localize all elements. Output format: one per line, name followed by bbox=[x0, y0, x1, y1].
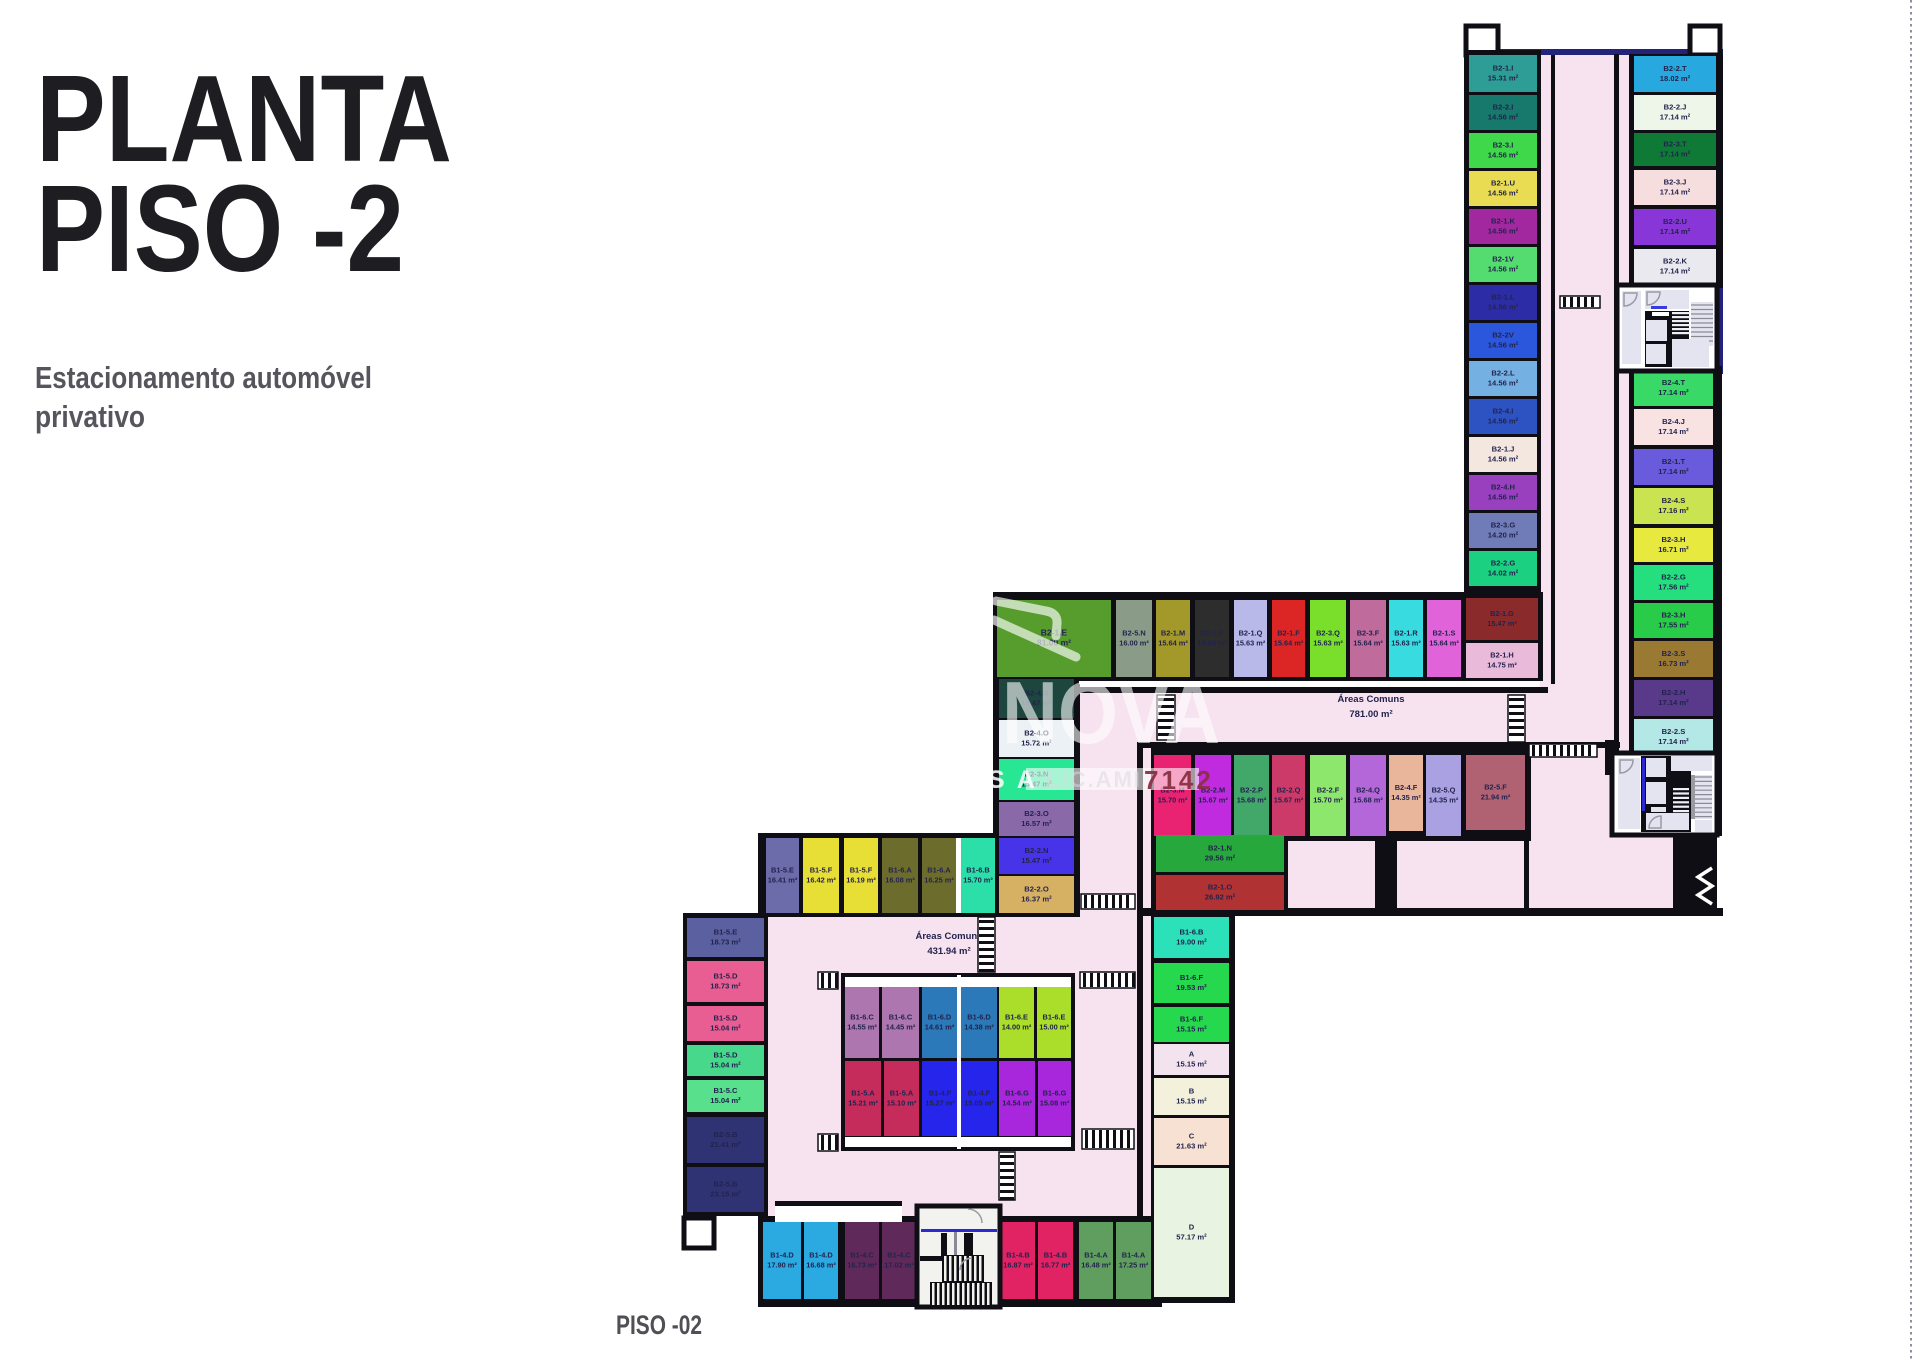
svg-text:16.71 m²: 16.71 m² bbox=[1658, 545, 1689, 554]
svg-text:B2-1.P: B2-1.P bbox=[1200, 629, 1223, 638]
svg-text:B1-4.B: B1-4.B bbox=[1044, 1251, 1067, 1260]
svg-text:14.55 m²: 14.55 m² bbox=[847, 1023, 877, 1032]
svg-text:B2-2.K: B2-2.K bbox=[1663, 257, 1688, 266]
svg-text:B1-4.F: B1-4.F bbox=[929, 1089, 952, 1098]
svg-text:B2-5.F: B2-5.F bbox=[1484, 783, 1507, 792]
svg-text:16.68 m²: 16.68 m² bbox=[806, 1261, 836, 1270]
svg-text:B2-2.F: B2-2.F bbox=[1317, 786, 1340, 795]
svg-text:15.00 m²: 15.00 m² bbox=[1039, 1023, 1069, 1032]
svg-text:B2-2.H: B2-2.H bbox=[1661, 688, 1685, 697]
svg-text:15.64 m²: 15.64 m² bbox=[1274, 639, 1304, 648]
svg-text:B2-3.F: B2-3.F bbox=[1357, 629, 1380, 638]
svg-text:B2-4.F: B2-4.F bbox=[1395, 783, 1418, 792]
svg-text:15.15 m²: 15.15 m² bbox=[1176, 1060, 1207, 1069]
svg-text:B2-3.T: B2-3.T bbox=[1663, 140, 1687, 149]
svg-text:23.15 m²: 23.15 m² bbox=[710, 1190, 741, 1199]
svg-text:B1-5.D: B1-5.D bbox=[713, 1014, 738, 1023]
svg-text:PISO -2: PISO -2 bbox=[36, 161, 404, 298]
svg-text:15.67 m²: 15.67 m² bbox=[1274, 796, 1304, 805]
svg-text:B2-3.I: B2-3.I bbox=[1493, 141, 1514, 150]
svg-text:B2-3.J: B2-3.J bbox=[1664, 178, 1687, 187]
svg-text:14.56 m²: 14.56 m² bbox=[1488, 493, 1519, 502]
svg-text:15.04 m²: 15.04 m² bbox=[710, 1096, 741, 1105]
svg-text:B2-3.G: B2-3.G bbox=[1491, 521, 1516, 530]
svg-text:B2-5.B: B2-5.B bbox=[713, 1130, 738, 1139]
svg-text:B1-4.C: B1-4.C bbox=[887, 1251, 911, 1260]
svg-text:D: D bbox=[1189, 1223, 1195, 1232]
svg-text:18.73 m²: 18.73 m² bbox=[710, 982, 741, 991]
svg-text:14.56 m²: 14.56 m² bbox=[1488, 455, 1519, 464]
svg-text:16.25 m²: 16.25 m² bbox=[924, 876, 954, 885]
svg-text:B2-3.H: B2-3.H bbox=[1661, 611, 1685, 620]
svg-text:B2-2.S: B2-2.S bbox=[1662, 727, 1686, 736]
svg-text:B: B bbox=[1189, 1087, 1195, 1096]
svg-text:16.08 m²: 16.08 m² bbox=[885, 876, 915, 885]
svg-text:14.56 m²: 14.56 m² bbox=[1488, 417, 1519, 426]
svg-text:B2-2.I: B2-2.I bbox=[1493, 103, 1514, 112]
svg-text:17.14 m²: 17.14 m² bbox=[1660, 227, 1691, 236]
svg-text:B2-5.Q: B2-5.Q bbox=[1432, 786, 1456, 795]
svg-text:57.17 m²: 57.17 m² bbox=[1176, 1233, 1207, 1242]
svg-text:781.00 m²: 781.00 m² bbox=[1349, 709, 1392, 720]
svg-text:B2-3.Q: B2-3.Q bbox=[1316, 629, 1340, 638]
svg-text:B1-5.D: B1-5.D bbox=[713, 1051, 738, 1060]
svg-text:14.02 m²: 14.02 m² bbox=[1488, 569, 1519, 578]
svg-text:15.63 m²: 15.63 m² bbox=[1313, 639, 1343, 648]
svg-text:16.19 m²: 16.19 m² bbox=[846, 876, 876, 885]
svg-text:18.73 m²: 18.73 m² bbox=[710, 938, 741, 947]
svg-text:15.68 m²: 15.68 m² bbox=[1237, 796, 1267, 805]
svg-text:431.94 m²: 431.94 m² bbox=[927, 946, 970, 957]
svg-text:14.56 m²: 14.56 m² bbox=[1488, 113, 1519, 122]
svg-text:17.14 m²: 17.14 m² bbox=[1660, 188, 1691, 197]
svg-text:15.63 m²: 15.63 m² bbox=[1236, 639, 1266, 648]
svg-text:15.10 m²: 15.10 m² bbox=[887, 1099, 917, 1108]
svg-text:15.64 m²: 15.64 m² bbox=[1353, 639, 1383, 648]
svg-text:21.94 m²: 21.94 m² bbox=[1481, 793, 1511, 802]
svg-text:B2-1.U: B2-1.U bbox=[1491, 179, 1516, 188]
svg-text:16.42 m²: 16.42 m² bbox=[806, 876, 836, 885]
svg-text:16.37 m²: 16.37 m² bbox=[1021, 895, 1052, 904]
svg-text:15.63 m²: 15.63 m² bbox=[1391, 639, 1421, 648]
svg-text:B2-2.T: B2-2.T bbox=[1663, 64, 1687, 73]
svg-text:15.68 m²: 15.68 m² bbox=[1353, 796, 1383, 805]
svg-text:B2-1.I: B2-1.I bbox=[1493, 64, 1514, 73]
svg-text:B1-6.G: B1-6.G bbox=[1043, 1089, 1067, 1098]
svg-text:14.61 m²: 14.61 m² bbox=[925, 1023, 955, 1032]
svg-text:B2-2.Q: B2-2.Q bbox=[1277, 786, 1301, 795]
svg-text:B1-6.A: B1-6.A bbox=[888, 866, 912, 875]
svg-text:B2-1.S: B2-1.S bbox=[1432, 629, 1455, 638]
svg-text:17.14 m²: 17.14 m² bbox=[1658, 467, 1689, 476]
svg-text:B2-1.J: B2-1.J bbox=[1492, 445, 1515, 454]
svg-text:B2-1.N: B2-1.N bbox=[1208, 844, 1232, 853]
svg-text:B2-1.H: B2-1.H bbox=[1490, 651, 1513, 660]
svg-text:B2-2.O: B2-2.O bbox=[1024, 885, 1049, 894]
svg-text:16.73 m²: 16.73 m² bbox=[847, 1261, 877, 1270]
svg-text:17.90 m²: 17.90 m² bbox=[767, 1261, 797, 1270]
svg-text:B1-5.E: B1-5.E bbox=[714, 928, 738, 937]
svg-text:17.14 m²: 17.14 m² bbox=[1660, 113, 1691, 122]
svg-text:16.41 m²: 16.41 m² bbox=[768, 876, 798, 885]
svg-text:LIC.AMI: LIC.AMI bbox=[1046, 767, 1142, 792]
svg-text:B2-1.L: B2-1.L bbox=[1491, 293, 1515, 302]
svg-text:B1-4.F: B1-4.F bbox=[968, 1089, 991, 1098]
svg-text:15.31 m²: 15.31 m² bbox=[1488, 74, 1519, 83]
svg-text:B1-6.D: B1-6.D bbox=[928, 1013, 952, 1022]
svg-text:B2-4.J: B2-4.J bbox=[1662, 417, 1685, 426]
svg-text:15.04 m²: 15.04 m² bbox=[710, 1061, 741, 1070]
svg-text:Áreas Comuns: Áreas Comuns bbox=[915, 931, 982, 942]
svg-text:16.00 m²: 16.00 m² bbox=[1119, 639, 1149, 648]
svg-text:14.56 m²: 14.56 m² bbox=[1488, 341, 1519, 350]
svg-text:16.73 m²: 16.73 m² bbox=[1658, 659, 1689, 668]
svg-text:18.02 m²: 18.02 m² bbox=[1660, 74, 1691, 83]
svg-text:B1-5.D: B1-5.D bbox=[713, 972, 738, 981]
svg-text:16.87 m²: 16.87 m² bbox=[1003, 1261, 1033, 1270]
svg-text:B1-5.C: B1-5.C bbox=[713, 1086, 738, 1095]
svg-text:16.48 m²: 16.48 m² bbox=[1081, 1261, 1111, 1270]
svg-text:B2-2.G: B2-2.G bbox=[1491, 559, 1516, 568]
svg-text:15.21 m²: 15.21 m² bbox=[848, 1099, 878, 1108]
svg-text:17.55 m²: 17.55 m² bbox=[1658, 621, 1689, 630]
svg-text:17.14 m²: 17.14 m² bbox=[1658, 737, 1689, 746]
svg-text:B2-4.T: B2-4.T bbox=[1662, 378, 1686, 387]
svg-text:B1-5.A: B1-5.A bbox=[890, 1089, 914, 1098]
svg-text:15.64 m²: 15.64 m² bbox=[1429, 639, 1459, 648]
svg-text:14.35 m²: 14.35 m² bbox=[1391, 793, 1421, 802]
svg-text:21.41 m²: 21.41 m² bbox=[710, 1140, 741, 1149]
svg-text:15.15 m²: 15.15 m² bbox=[1176, 1097, 1207, 1106]
svg-text:15.70 m²: 15.70 m² bbox=[1313, 796, 1343, 805]
svg-text:14.20 m²: 14.20 m² bbox=[1488, 531, 1519, 540]
svg-text:B2-2V: B2-2V bbox=[1492, 331, 1514, 340]
svg-text:B2-1V: B2-1V bbox=[1492, 255, 1514, 264]
svg-text:Áreas Comuns: Áreas Comuns bbox=[1337, 694, 1404, 705]
svg-text:14.56 m²: 14.56 m² bbox=[1488, 151, 1519, 160]
svg-text:17.14 m²: 17.14 m² bbox=[1658, 388, 1689, 397]
svg-text:14.45 m²: 14.45 m² bbox=[886, 1023, 916, 1032]
svg-text:19.53 m²: 19.53 m² bbox=[1176, 983, 1207, 992]
svg-text:B1-6.C: B1-6.C bbox=[850, 1013, 874, 1022]
svg-text:C: C bbox=[1189, 1132, 1195, 1141]
svg-text:14.56 m²: 14.56 m² bbox=[1488, 265, 1519, 274]
svg-text:14.56 m²: 14.56 m² bbox=[1488, 303, 1519, 312]
svg-text:B1-4.A: B1-4.A bbox=[1122, 1251, 1146, 1260]
svg-text:B2-5.B: B2-5.B bbox=[713, 1180, 738, 1189]
svg-text:17.16 m²: 17.16 m² bbox=[1658, 506, 1689, 515]
svg-text:15.47 m²: 15.47 m² bbox=[1487, 619, 1517, 628]
svg-text:B1-5.F: B1-5.F bbox=[810, 866, 833, 875]
svg-text:B1-4.D: B1-4.D bbox=[770, 1251, 794, 1260]
svg-text:B2-3.S: B2-3.S bbox=[1662, 649, 1686, 658]
svg-text:17.02 m²: 17.02 m² bbox=[884, 1261, 914, 1270]
svg-text:17.14 m²: 17.14 m² bbox=[1658, 698, 1689, 707]
svg-text:17.25 m²: 17.25 m² bbox=[1119, 1261, 1149, 1270]
svg-text:PISO -02: PISO -02 bbox=[616, 1310, 702, 1340]
svg-text:B1-6.C: B1-6.C bbox=[889, 1013, 913, 1022]
svg-text:26.92 m²: 26.92 m² bbox=[1205, 893, 1236, 902]
svg-text:B2-4.H: B2-4.H bbox=[1491, 483, 1515, 492]
svg-text:15.70 m²: 15.70 m² bbox=[963, 876, 993, 885]
svg-text:17.14 m²: 17.14 m² bbox=[1658, 427, 1689, 436]
svg-text:B2-4.S: B2-4.S bbox=[1662, 496, 1686, 505]
svg-text:15.64 m²: 15.64 m² bbox=[1197, 639, 1227, 648]
svg-text:15.04 m²: 15.04 m² bbox=[710, 1024, 741, 1033]
svg-text:14.00 m²: 14.00 m² bbox=[1002, 1023, 1032, 1032]
svg-text:B1-6.E: B1-6.E bbox=[1042, 1013, 1065, 1022]
svg-text:B2-4.Q: B2-4.Q bbox=[1356, 786, 1380, 795]
svg-text:B2-1.K: B2-1.K bbox=[1491, 217, 1516, 226]
svg-text:B1-6.D: B1-6.D bbox=[967, 1013, 991, 1022]
svg-text:17.14 m²: 17.14 m² bbox=[1660, 267, 1691, 276]
svg-text:B2-2.U: B2-2.U bbox=[1663, 217, 1688, 226]
svg-text:B2-2.L: B2-2.L bbox=[1491, 369, 1515, 378]
svg-text:B2-2.N: B2-2.N bbox=[1024, 846, 1048, 855]
svg-text:B2-1.T: B2-1.T bbox=[1662, 457, 1686, 466]
svg-text:B1-6.F: B1-6.F bbox=[1180, 973, 1204, 982]
svg-text:15.27 m²: 15.27 m² bbox=[925, 1099, 955, 1108]
svg-text:15.05 m²: 15.05 m² bbox=[964, 1099, 994, 1108]
svg-text:17.56 m²: 17.56 m² bbox=[1658, 583, 1689, 592]
svg-text:14.54 m²: 14.54 m² bbox=[1002, 1099, 1032, 1108]
svg-text:17.14 m²: 17.14 m² bbox=[1660, 150, 1691, 159]
svg-text:B1-6.G: B1-6.G bbox=[1005, 1089, 1029, 1098]
svg-text:S A: S A bbox=[988, 766, 1038, 794]
svg-text:B2-5.N: B2-5.N bbox=[1122, 629, 1145, 638]
svg-text:privativo: privativo bbox=[35, 399, 145, 434]
svg-text:B2-1.F: B2-1.F bbox=[1277, 629, 1300, 638]
svg-text:14.56 m²: 14.56 m² bbox=[1488, 227, 1519, 236]
svg-text:16.77 m²: 16.77 m² bbox=[1041, 1261, 1071, 1270]
svg-text:B2-1.Q: B2-1.Q bbox=[1239, 629, 1263, 638]
svg-text:B1-6.B: B1-6.B bbox=[1179, 928, 1204, 937]
svg-text:B1-5.E: B1-5.E bbox=[771, 866, 794, 875]
svg-text:B1-6.E: B1-6.E bbox=[1005, 1013, 1028, 1022]
svg-text:B1-5.A: B1-5.A bbox=[851, 1089, 875, 1098]
svg-text:B1-6.B: B1-6.B bbox=[966, 866, 989, 875]
svg-text:B1-4.D: B1-4.D bbox=[809, 1251, 833, 1260]
svg-text:B1-6.A: B1-6.A bbox=[927, 866, 951, 875]
svg-text:B2-3.O: B2-3.O bbox=[1024, 809, 1049, 818]
svg-text:B2-1.O: B2-1.O bbox=[1208, 883, 1233, 892]
svg-text:29.56 m²: 29.56 m² bbox=[1205, 854, 1236, 863]
svg-text:Estacionamento automóvel: Estacionamento automóvel bbox=[35, 360, 372, 395]
svg-text:B1-6.F: B1-6.F bbox=[1180, 1015, 1204, 1024]
svg-text:15.15 m²: 15.15 m² bbox=[1176, 1025, 1207, 1034]
svg-text:15.47 m²: 15.47 m² bbox=[1021, 856, 1052, 865]
svg-text:B2-3.H: B2-3.H bbox=[1661, 535, 1685, 544]
svg-text:14.75 m²: 14.75 m² bbox=[1487, 661, 1517, 670]
svg-text:B2-4.I: B2-4.I bbox=[1493, 407, 1514, 416]
svg-text:15.70 m²: 15.70 m² bbox=[1158, 796, 1188, 805]
svg-text:14.56 m²: 14.56 m² bbox=[1488, 189, 1519, 198]
svg-text:14.38 m²: 14.38 m² bbox=[964, 1023, 994, 1032]
svg-text:15.64 m²: 15.64 m² bbox=[1158, 639, 1188, 648]
svg-text:B2-2.G: B2-2.G bbox=[1661, 573, 1686, 582]
svg-text:7142: 7142 bbox=[1144, 765, 1214, 795]
svg-text:B2-2.P: B2-2.P bbox=[1240, 786, 1263, 795]
svg-text:14.56 m²: 14.56 m² bbox=[1488, 379, 1519, 388]
svg-text:B1-4.A: B1-4.A bbox=[1084, 1251, 1108, 1260]
svg-text:A: A bbox=[1189, 1050, 1195, 1059]
svg-text:21.63 m²: 21.63 m² bbox=[1176, 1142, 1207, 1151]
svg-text:14.35 m²: 14.35 m² bbox=[1429, 796, 1459, 805]
svg-text:NOVA: NOVA bbox=[1002, 663, 1220, 762]
svg-text:15.67 m²: 15.67 m² bbox=[1198, 796, 1228, 805]
svg-text:B2-1.G: B2-1.G bbox=[1490, 609, 1514, 618]
svg-text:19.00 m²: 19.00 m² bbox=[1176, 938, 1207, 947]
svg-text:B1-4.B: B1-4.B bbox=[1006, 1251, 1029, 1260]
svg-text:15.08 m²: 15.08 m² bbox=[1040, 1099, 1070, 1108]
svg-text:16.57 m²: 16.57 m² bbox=[1021, 819, 1052, 828]
svg-text:B1-5.F: B1-5.F bbox=[850, 866, 873, 875]
svg-text:B1-4.C: B1-4.C bbox=[850, 1251, 874, 1260]
svg-text:B2-1.R: B2-1.R bbox=[1394, 629, 1418, 638]
svg-text:B2-2.J: B2-2.J bbox=[1664, 103, 1687, 112]
svg-text:B2-1.M: B2-1.M bbox=[1161, 629, 1185, 638]
